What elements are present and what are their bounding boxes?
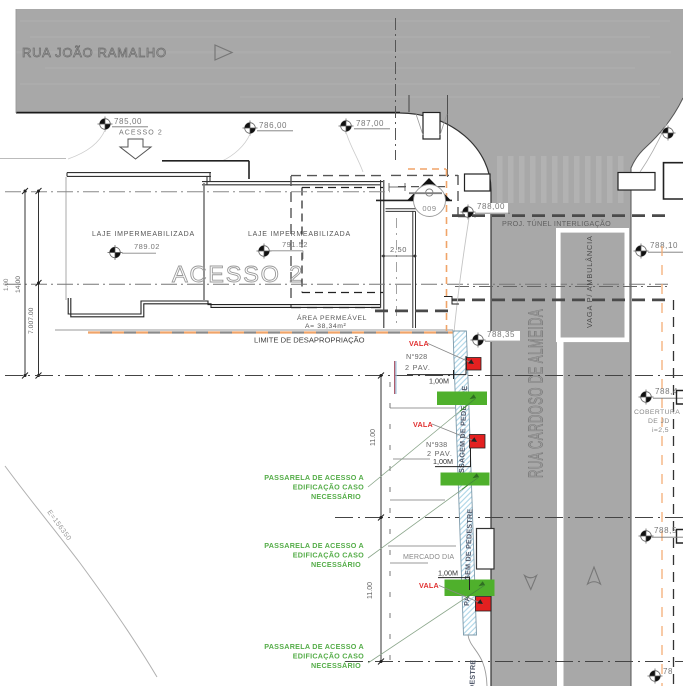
svg-text:009: 009 xyxy=(422,204,436,213)
svg-text:786,00: 786,00 xyxy=(259,121,287,130)
svg-text:785,00: 785,00 xyxy=(114,117,142,126)
svg-text:N°928: N°928 xyxy=(406,352,427,361)
svg-text:RUA CARDOSO DE ALMEIDA: RUA CARDOSO DE ALMEIDA xyxy=(524,309,547,478)
svg-text:787,00: 787,00 xyxy=(356,119,384,128)
svg-text:A= 38,34m²: A= 38,34m² xyxy=(305,323,346,330)
svg-text:ACESSO 2: ACESSO 2 xyxy=(119,130,163,137)
svg-text:ÁREA PERMEÁVEL: ÁREA PERMEÁVEL xyxy=(297,313,367,322)
svg-text:N°938: N°938 xyxy=(426,440,447,449)
svg-text:PASSARELA DE ACESSO A: PASSARELA DE ACESSO A xyxy=(264,473,364,482)
svg-text:11.00: 11.00 xyxy=(367,582,374,599)
svg-text:791.52: 791.52 xyxy=(282,240,308,249)
svg-text:14.00: 14.00 xyxy=(15,276,22,293)
svg-text:1,00M: 1,00M xyxy=(429,377,449,386)
svg-text:789.02: 789.02 xyxy=(134,242,160,251)
svg-text:NECESSÁRIO: NECESSÁRIO xyxy=(311,661,361,670)
svg-text:LAJE IMPERMEABILIZADA: LAJE IMPERMEABILIZADA xyxy=(92,231,195,238)
svg-text:LAJE IMPERMEABILIZADA: LAJE IMPERMEABILIZADA xyxy=(248,231,351,238)
svg-text:EDIFICAÇÃO CASO: EDIFICAÇÃO CASO xyxy=(293,652,364,661)
svg-text:788,00: 788,00 xyxy=(477,202,505,211)
svg-text:VALA: VALA xyxy=(409,339,429,348)
svg-text:NECESSÁRIO: NECESSÁRIO xyxy=(311,492,361,501)
svg-text:RUA JOÃO RAMALHO: RUA JOÃO RAMALHO xyxy=(22,45,167,60)
svg-text:78: 78 xyxy=(663,667,673,676)
svg-text:PASSARELA DE ACESSO A: PASSARELA DE ACESSO A xyxy=(264,541,364,550)
svg-text:2 PAV.: 2 PAV. xyxy=(405,363,431,372)
svg-text:1,00M: 1,00M xyxy=(433,457,453,466)
svg-text:EDIFICAÇÃO CASO: EDIFICAÇÃO CASO xyxy=(293,483,364,492)
svg-text:VALA: VALA xyxy=(419,581,439,590)
svg-text:PROJ. TÚNEL INTERLIGAÇÃO: PROJ. TÚNEL INTERLIGAÇÃO xyxy=(502,219,611,228)
svg-text:1.00: 1.00 xyxy=(3,278,10,291)
svg-text:VALA: VALA xyxy=(413,420,433,429)
svg-text:788,10: 788,10 xyxy=(650,241,678,250)
svg-text:MERCADO DIA: MERCADO DIA xyxy=(403,553,454,561)
svg-text:VAGA P/ AMBULÂNCIA: VAGA P/ AMBULÂNCIA xyxy=(585,235,594,328)
svg-text:i=2,5: i=2,5 xyxy=(652,427,669,434)
svg-text:2,50: 2,50 xyxy=(390,245,407,254)
svg-text:DE JD: DE JD xyxy=(648,418,670,425)
svg-text:788,4: 788,4 xyxy=(655,387,678,396)
svg-text:LIMITE DE DESAPROPRIAÇÃO: LIMITE DE DESAPROPRIAÇÃO xyxy=(254,336,365,345)
svg-text:788,35: 788,35 xyxy=(487,330,515,339)
svg-text:PASSARELA DE ACESSO A: PASSARELA DE ACESSO A xyxy=(264,642,364,651)
svg-text:2 PAV.: 2 PAV. xyxy=(427,449,453,458)
svg-text:ACESSO 2: ACESSO 2 xyxy=(172,261,304,287)
svg-text:COBERTURA: COBERTURA xyxy=(634,409,680,416)
svg-text:EDIFICAÇÃO CASO: EDIFICAÇÃO CASO xyxy=(293,551,364,560)
svg-text:788,5: 788,5 xyxy=(654,526,677,535)
svg-text:NECESSÁRIO: NECESSÁRIO xyxy=(311,560,361,569)
svg-text:11.00: 11.00 xyxy=(370,429,377,446)
svg-text:7.007.00: 7.007.00 xyxy=(28,307,35,334)
svg-text:1,00M: 1,00M xyxy=(438,569,458,578)
